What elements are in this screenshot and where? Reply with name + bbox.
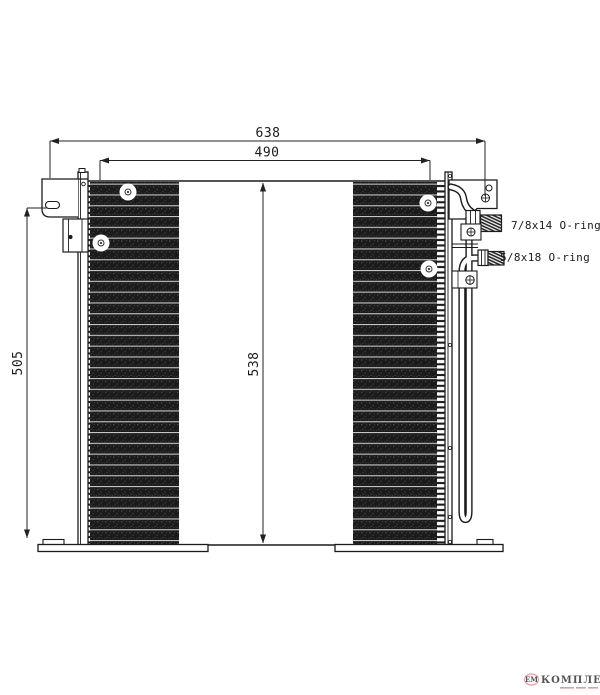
watermark: ЕМ КОМПЛЕКТ: [525, 674, 600, 689]
condenser-drawing: 638 490 505 538 7/8x14 O-ring 5/8x18 O-r…: [0, 0, 600, 695]
core-right-fins: [353, 182, 437, 545]
bracket-sub-plate: [63, 219, 88, 252]
mounting-hole: [421, 261, 438, 278]
dim-label-490: 490: [255, 146, 280, 161]
right-fin-edge: [437, 182, 445, 545]
dim-label-638: 638: [256, 126, 281, 141]
bracket-hole: [68, 235, 72, 239]
dimension-left-height: 505: [11, 208, 47, 538]
watermark-logo: ЕМ: [525, 675, 538, 684]
dim-label-505: 505: [11, 351, 26, 376]
mounting-hole: [420, 195, 437, 212]
fitting-thread: [481, 215, 502, 232]
fitting-nut: [478, 250, 488, 266]
right-side-channel: [445, 172, 452, 545]
page: 638 490 505 538 7/8x14 O-ring 5/8x18 O-r…: [0, 0, 600, 695]
bracket-slot: [46, 202, 60, 209]
fitting-bottom-label: 5/8x18 O-ring: [500, 251, 590, 264]
channel-top-peg: [79, 169, 85, 173]
watermark-brand: КОМПЛЕКТ: [541, 675, 600, 686]
dimension-core-height: 538: [247, 183, 266, 544]
watermark-fine-print: [560, 687, 598, 689]
dimension-core-width: 490: [100, 146, 430, 181]
fitting-7-8x14: [461, 211, 502, 241]
mounting-hole: [120, 184, 137, 201]
mounting-hole: [93, 235, 110, 252]
condenser-core: [84, 181, 450, 545]
dim-label-538: 538: [247, 352, 262, 377]
pipe-clamp: [452, 271, 477, 288]
pipe-clamp: [461, 224, 481, 240]
fitting-top-label: 7/8x14 O-ring: [511, 219, 600, 232]
